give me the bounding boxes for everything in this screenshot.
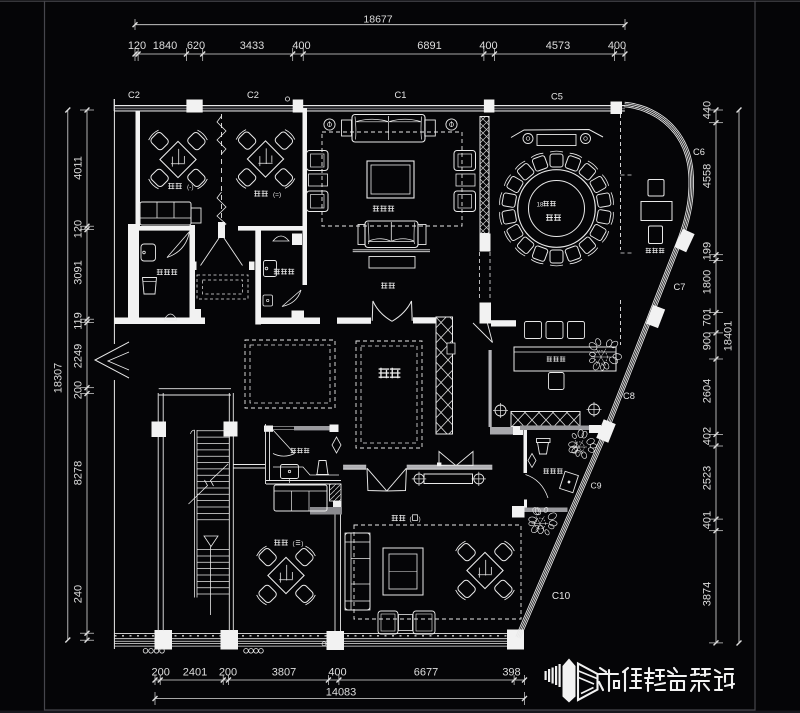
- svg-text:): ): [419, 516, 421, 523]
- svg-text:1840: 1840: [153, 40, 177, 52]
- svg-text:620: 620: [187, 40, 205, 52]
- svg-text:(: (: [410, 516, 413, 523]
- svg-text:3874: 3874: [702, 582, 714, 606]
- svg-text:2523: 2523: [702, 466, 714, 490]
- svg-text:440: 440: [702, 101, 714, 119]
- svg-text:120: 120: [128, 40, 146, 52]
- svg-text:1800: 1800: [702, 270, 714, 294]
- svg-text:119: 119: [73, 312, 85, 330]
- svg-text:4011: 4011: [73, 156, 85, 180]
- svg-text:401: 401: [702, 511, 714, 529]
- svg-text:6891: 6891: [417, 40, 441, 52]
- svg-text:6677: 6677: [414, 667, 438, 679]
- svg-text:120: 120: [73, 220, 85, 238]
- svg-text:400: 400: [608, 40, 626, 52]
- svg-text:(: (: [293, 541, 296, 548]
- svg-text:C5: C5: [551, 92, 563, 102]
- svg-text:(-): (-): [187, 184, 194, 191]
- svg-text:C2: C2: [128, 90, 140, 100]
- svg-text:C6: C6: [693, 147, 705, 157]
- svg-text:3807: 3807: [272, 667, 296, 679]
- svg-text:18401: 18401: [723, 321, 735, 352]
- svg-text:C8: C8: [623, 391, 635, 401]
- svg-text:400: 400: [328, 667, 346, 679]
- svg-text:199: 199: [702, 242, 714, 260]
- svg-text:18307: 18307: [53, 363, 65, 394]
- svg-text:14083: 14083: [326, 687, 357, 699]
- svg-text:4558: 4558: [702, 164, 714, 188]
- svg-text:C7: C7: [674, 282, 686, 292]
- svg-text:4573: 4573: [546, 40, 570, 52]
- svg-text:200: 200: [219, 667, 237, 679]
- svg-text:18: 18: [537, 203, 544, 209]
- svg-text:900: 900: [702, 332, 714, 350]
- svg-text:C9: C9: [591, 481, 602, 491]
- svg-text:3433: 3433: [240, 40, 264, 52]
- svg-text:240: 240: [73, 585, 85, 603]
- svg-text:C2: C2: [247, 90, 259, 100]
- svg-text:C10: C10: [552, 591, 571, 602]
- svg-text:400: 400: [292, 40, 310, 52]
- svg-text:200: 200: [73, 381, 85, 399]
- svg-text:2604: 2604: [702, 379, 714, 403]
- svg-text:3091: 3091: [73, 260, 85, 284]
- svg-text:701: 701: [702, 308, 714, 326]
- svg-text:402: 402: [702, 427, 714, 445]
- svg-text:8278: 8278: [73, 461, 85, 485]
- svg-text:400: 400: [479, 40, 497, 52]
- svg-text:398: 398: [502, 667, 520, 679]
- svg-text:2249: 2249: [73, 344, 85, 368]
- svg-text:(=): (=): [273, 192, 281, 199]
- svg-text:2401: 2401: [183, 667, 207, 679]
- svg-text:18677: 18677: [363, 14, 392, 26]
- svg-text:): ): [301, 541, 303, 548]
- svg-text:C1: C1: [395, 90, 407, 100]
- svg-text:200: 200: [152, 667, 170, 679]
